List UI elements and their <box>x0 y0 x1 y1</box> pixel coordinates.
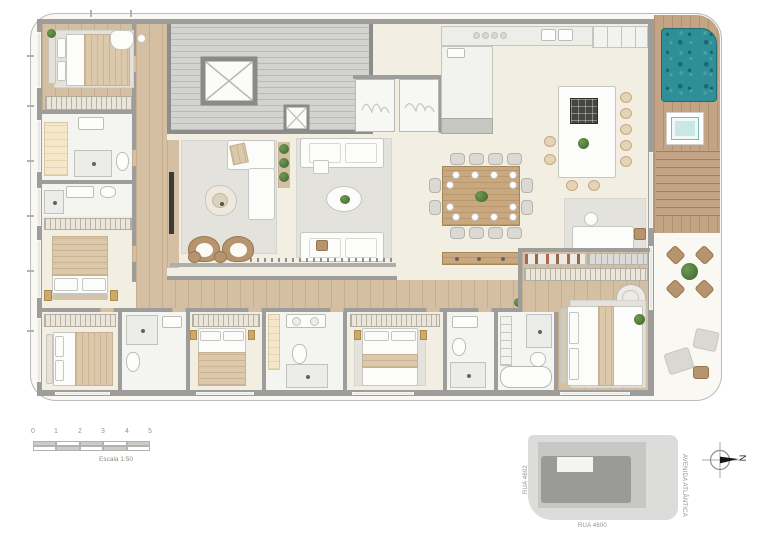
window-mullion-tick <box>27 55 34 57</box>
key-map-unit-marker <box>557 457 593 472</box>
window <box>560 392 630 395</box>
dining-chair <box>488 153 503 165</box>
floor-script-art <box>356 80 394 130</box>
hall-wood-floor <box>136 24 167 280</box>
window <box>352 392 414 395</box>
glass-door <box>649 152 653 228</box>
street-label-bottom: RUA 4600 <box>578 523 607 529</box>
window-mullion-tick <box>90 10 92 17</box>
bed-blanket <box>75 332 113 386</box>
bathtub <box>500 366 552 388</box>
scale-segment <box>33 446 56 451</box>
cooktop-burners <box>472 30 508 42</box>
vanity-cabinet <box>500 316 512 366</box>
bed-blanket <box>52 236 108 276</box>
pillow <box>569 348 579 380</box>
linen-closet <box>268 314 280 370</box>
elevator-shaft <box>200 56 258 106</box>
pillow <box>57 38 66 58</box>
spa-tub <box>666 112 704 145</box>
window <box>37 32 41 88</box>
dining-chair <box>521 200 533 215</box>
wall <box>518 248 522 312</box>
toilet <box>116 152 129 171</box>
scale-bar: 0 1 2 3 4 5 Escala 1:50 <box>33 428 153 468</box>
dining-chair <box>507 227 522 239</box>
bed-headboard <box>46 334 53 384</box>
pillow <box>200 331 221 341</box>
pillow <box>55 336 64 357</box>
toilet <box>452 338 466 356</box>
wardrobe <box>192 314 260 327</box>
side-table <box>634 228 646 240</box>
wardrobe <box>44 314 116 327</box>
bathroom-sink <box>162 316 182 328</box>
swimming-pool <box>661 28 717 102</box>
scale-tick-label: 2 <box>78 428 82 435</box>
window <box>37 318 41 382</box>
bar-stool <box>566 180 578 191</box>
compass-north-label: N <box>737 455 747 462</box>
closet <box>44 122 68 176</box>
service-room <box>399 79 439 132</box>
double-vanity <box>286 314 326 328</box>
wall <box>518 248 650 252</box>
service-room <box>355 79 395 132</box>
shower <box>286 364 328 388</box>
round-side-table <box>584 212 598 226</box>
bed-headboard <box>52 294 108 300</box>
elevator-lobby <box>167 24 373 134</box>
nightstand <box>110 290 118 301</box>
window-mullion-tick <box>27 330 34 332</box>
window-mullion-tick <box>27 105 34 107</box>
pillow <box>391 331 416 341</box>
island-plant <box>578 138 589 149</box>
scale-tick-label: 1 <box>54 428 58 435</box>
dining-table <box>442 166 520 226</box>
lounge-side-table <box>693 366 709 379</box>
window <box>37 188 41 226</box>
pillow <box>57 61 66 81</box>
dining-chair <box>429 200 441 215</box>
toilet <box>126 352 140 372</box>
dining-chair <box>521 178 533 193</box>
shoe-shelf <box>524 253 586 265</box>
nightstand <box>420 330 427 340</box>
toilet <box>100 186 116 198</box>
console-plant <box>279 144 289 154</box>
bar-stool <box>620 124 632 135</box>
bed-blanket <box>198 352 246 386</box>
door-opening <box>132 246 136 262</box>
bedroom-armchair <box>110 30 134 50</box>
wardrobe <box>350 314 440 327</box>
scale-segment <box>103 446 126 451</box>
pillow <box>364 331 389 341</box>
bed-runner <box>598 306 614 386</box>
television <box>169 172 174 234</box>
scale-segment <box>127 446 150 451</box>
wardrobe <box>45 96 132 110</box>
bed-headboard <box>560 308 567 384</box>
dining-chair <box>450 153 465 165</box>
glass-door <box>649 246 653 310</box>
centerpiece-plant <box>475 191 488 202</box>
scale-tick-label: 5 <box>148 428 152 435</box>
round-table <box>137 34 146 43</box>
side-table <box>316 240 328 251</box>
media-console <box>170 263 396 267</box>
planter-pot <box>188 251 201 263</box>
scale-segment <box>56 446 79 451</box>
shower <box>44 190 64 214</box>
spa-water <box>671 117 699 140</box>
prep-sink <box>447 48 465 58</box>
console-decor <box>250 258 394 262</box>
bathroom-sink <box>452 316 478 328</box>
wall <box>186 312 190 390</box>
bathroom-sink <box>66 186 94 198</box>
bar-stool <box>620 108 632 119</box>
closet-shelf <box>588 253 648 265</box>
dining-chair <box>488 227 503 239</box>
bar-stool <box>620 140 632 151</box>
floor-script-art <box>400 80 438 130</box>
floor-plan-page: 0 1 2 3 4 5 Escala 1:50 RUA 4602 AVENIDA… <box>0 0 768 546</box>
dining-chair <box>469 153 484 165</box>
window-mullion-tick <box>27 270 34 272</box>
scale-tick-label: 3 <box>101 428 105 435</box>
pillow <box>223 331 244 341</box>
door-opening <box>132 150 136 166</box>
pillow <box>54 278 78 291</box>
console-plant <box>279 172 289 182</box>
window <box>196 392 254 395</box>
window <box>55 392 110 395</box>
bar-stool <box>544 136 556 147</box>
nightstand <box>190 330 197 340</box>
side-table <box>313 160 329 174</box>
terrace-plant <box>681 263 698 280</box>
wardrobe <box>44 218 132 230</box>
window-mullion-tick <box>27 160 34 162</box>
service-elevator <box>283 104 310 132</box>
bar-stool <box>620 92 632 103</box>
compass: N <box>698 438 754 486</box>
scale-segment <box>80 446 103 451</box>
kitchen-sink <box>558 29 573 41</box>
window-mullion-tick <box>27 215 34 217</box>
dining-chair <box>507 153 522 165</box>
bedroom-corridor <box>136 280 522 308</box>
scale-caption: Escala 1:50 <box>99 456 133 463</box>
toilet <box>530 352 546 367</box>
toilet <box>292 344 307 364</box>
island-cooktop <box>570 98 598 124</box>
dining-chair <box>429 178 441 193</box>
nightstand <box>44 290 52 301</box>
dining-chair <box>469 227 484 239</box>
window <box>37 240 41 298</box>
bed-headboard <box>48 36 56 84</box>
bar-stool <box>620 156 632 167</box>
nightstand <box>354 330 361 340</box>
door-opening <box>100 308 114 312</box>
coffee-table <box>205 185 237 216</box>
shower <box>450 362 486 388</box>
bedroom-plant <box>634 314 645 325</box>
bar-stool <box>588 180 600 191</box>
sideboard <box>442 252 520 265</box>
kitchen-cabinets <box>592 26 648 48</box>
scale-tick-label: 0 <box>31 428 35 435</box>
kitchen-sink <box>541 29 556 41</box>
pillow <box>55 360 64 381</box>
wall <box>343 312 347 390</box>
dining-chair <box>450 227 465 239</box>
master-wardrobe <box>524 268 648 281</box>
oval-coffee-table <box>326 186 362 212</box>
street-label-left: RUA 4602 <box>523 465 529 494</box>
door-opening <box>248 308 262 312</box>
shower <box>126 315 158 345</box>
kitchen-appliance <box>441 118 493 134</box>
bathroom-sink <box>78 117 104 130</box>
shower <box>74 150 112 177</box>
nightstand <box>248 330 255 340</box>
pillow <box>82 278 106 291</box>
shower <box>526 314 552 348</box>
pillow <box>569 312 579 344</box>
deck-stairs <box>656 150 720 216</box>
bedroom-plant <box>47 29 56 38</box>
planter-pot <box>214 251 227 263</box>
bed-runner <box>362 354 418 368</box>
street-label-right: AVENIDA ATLÂNTICA <box>681 454 687 517</box>
window <box>37 120 41 172</box>
window-mullion-tick <box>130 10 132 17</box>
sectional-chaise <box>248 168 275 220</box>
bar-stool <box>544 154 556 165</box>
scale-tick-label: 4 <box>125 428 129 435</box>
console-plant <box>279 158 289 168</box>
door-opening <box>426 308 440 312</box>
